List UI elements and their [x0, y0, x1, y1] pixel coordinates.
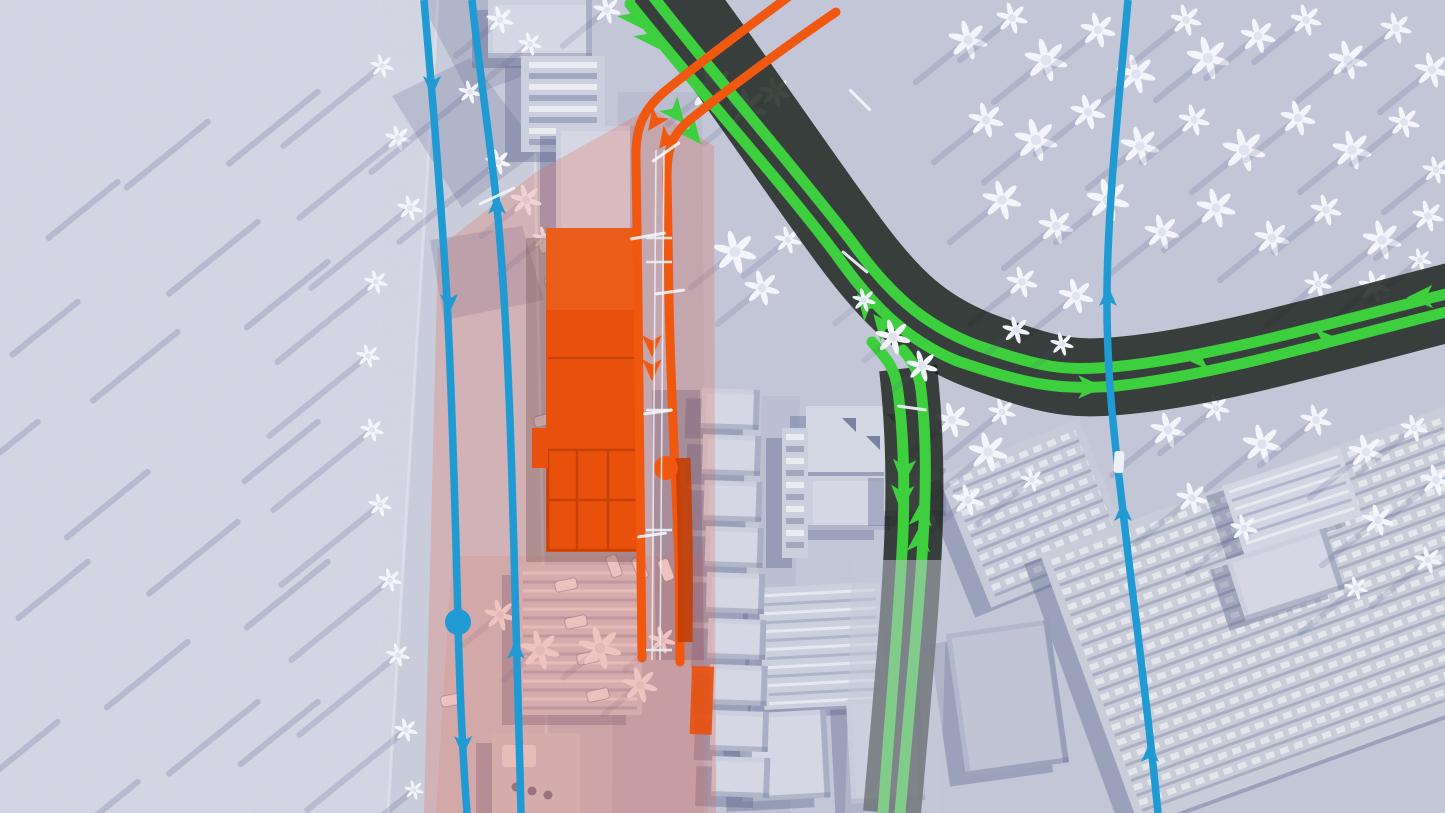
- building[interactable]: [708, 664, 767, 706]
- building[interactable]: [707, 618, 766, 660]
- transit-stop-orange[interactable]: [654, 456, 678, 480]
- building[interactable]: [710, 710, 769, 752]
- city-map-canvas[interactable]: [0, 0, 1445, 813]
- transit-vehicle[interactable]: [1113, 451, 1124, 473]
- game-viewport[interactable]: [0, 0, 1445, 813]
- transit-stop-blue[interactable]: [445, 609, 471, 635]
- building[interactable]: [711, 756, 770, 798]
- building[interactable]: [946, 620, 1069, 777]
- building[interactable]: [782, 428, 808, 558]
